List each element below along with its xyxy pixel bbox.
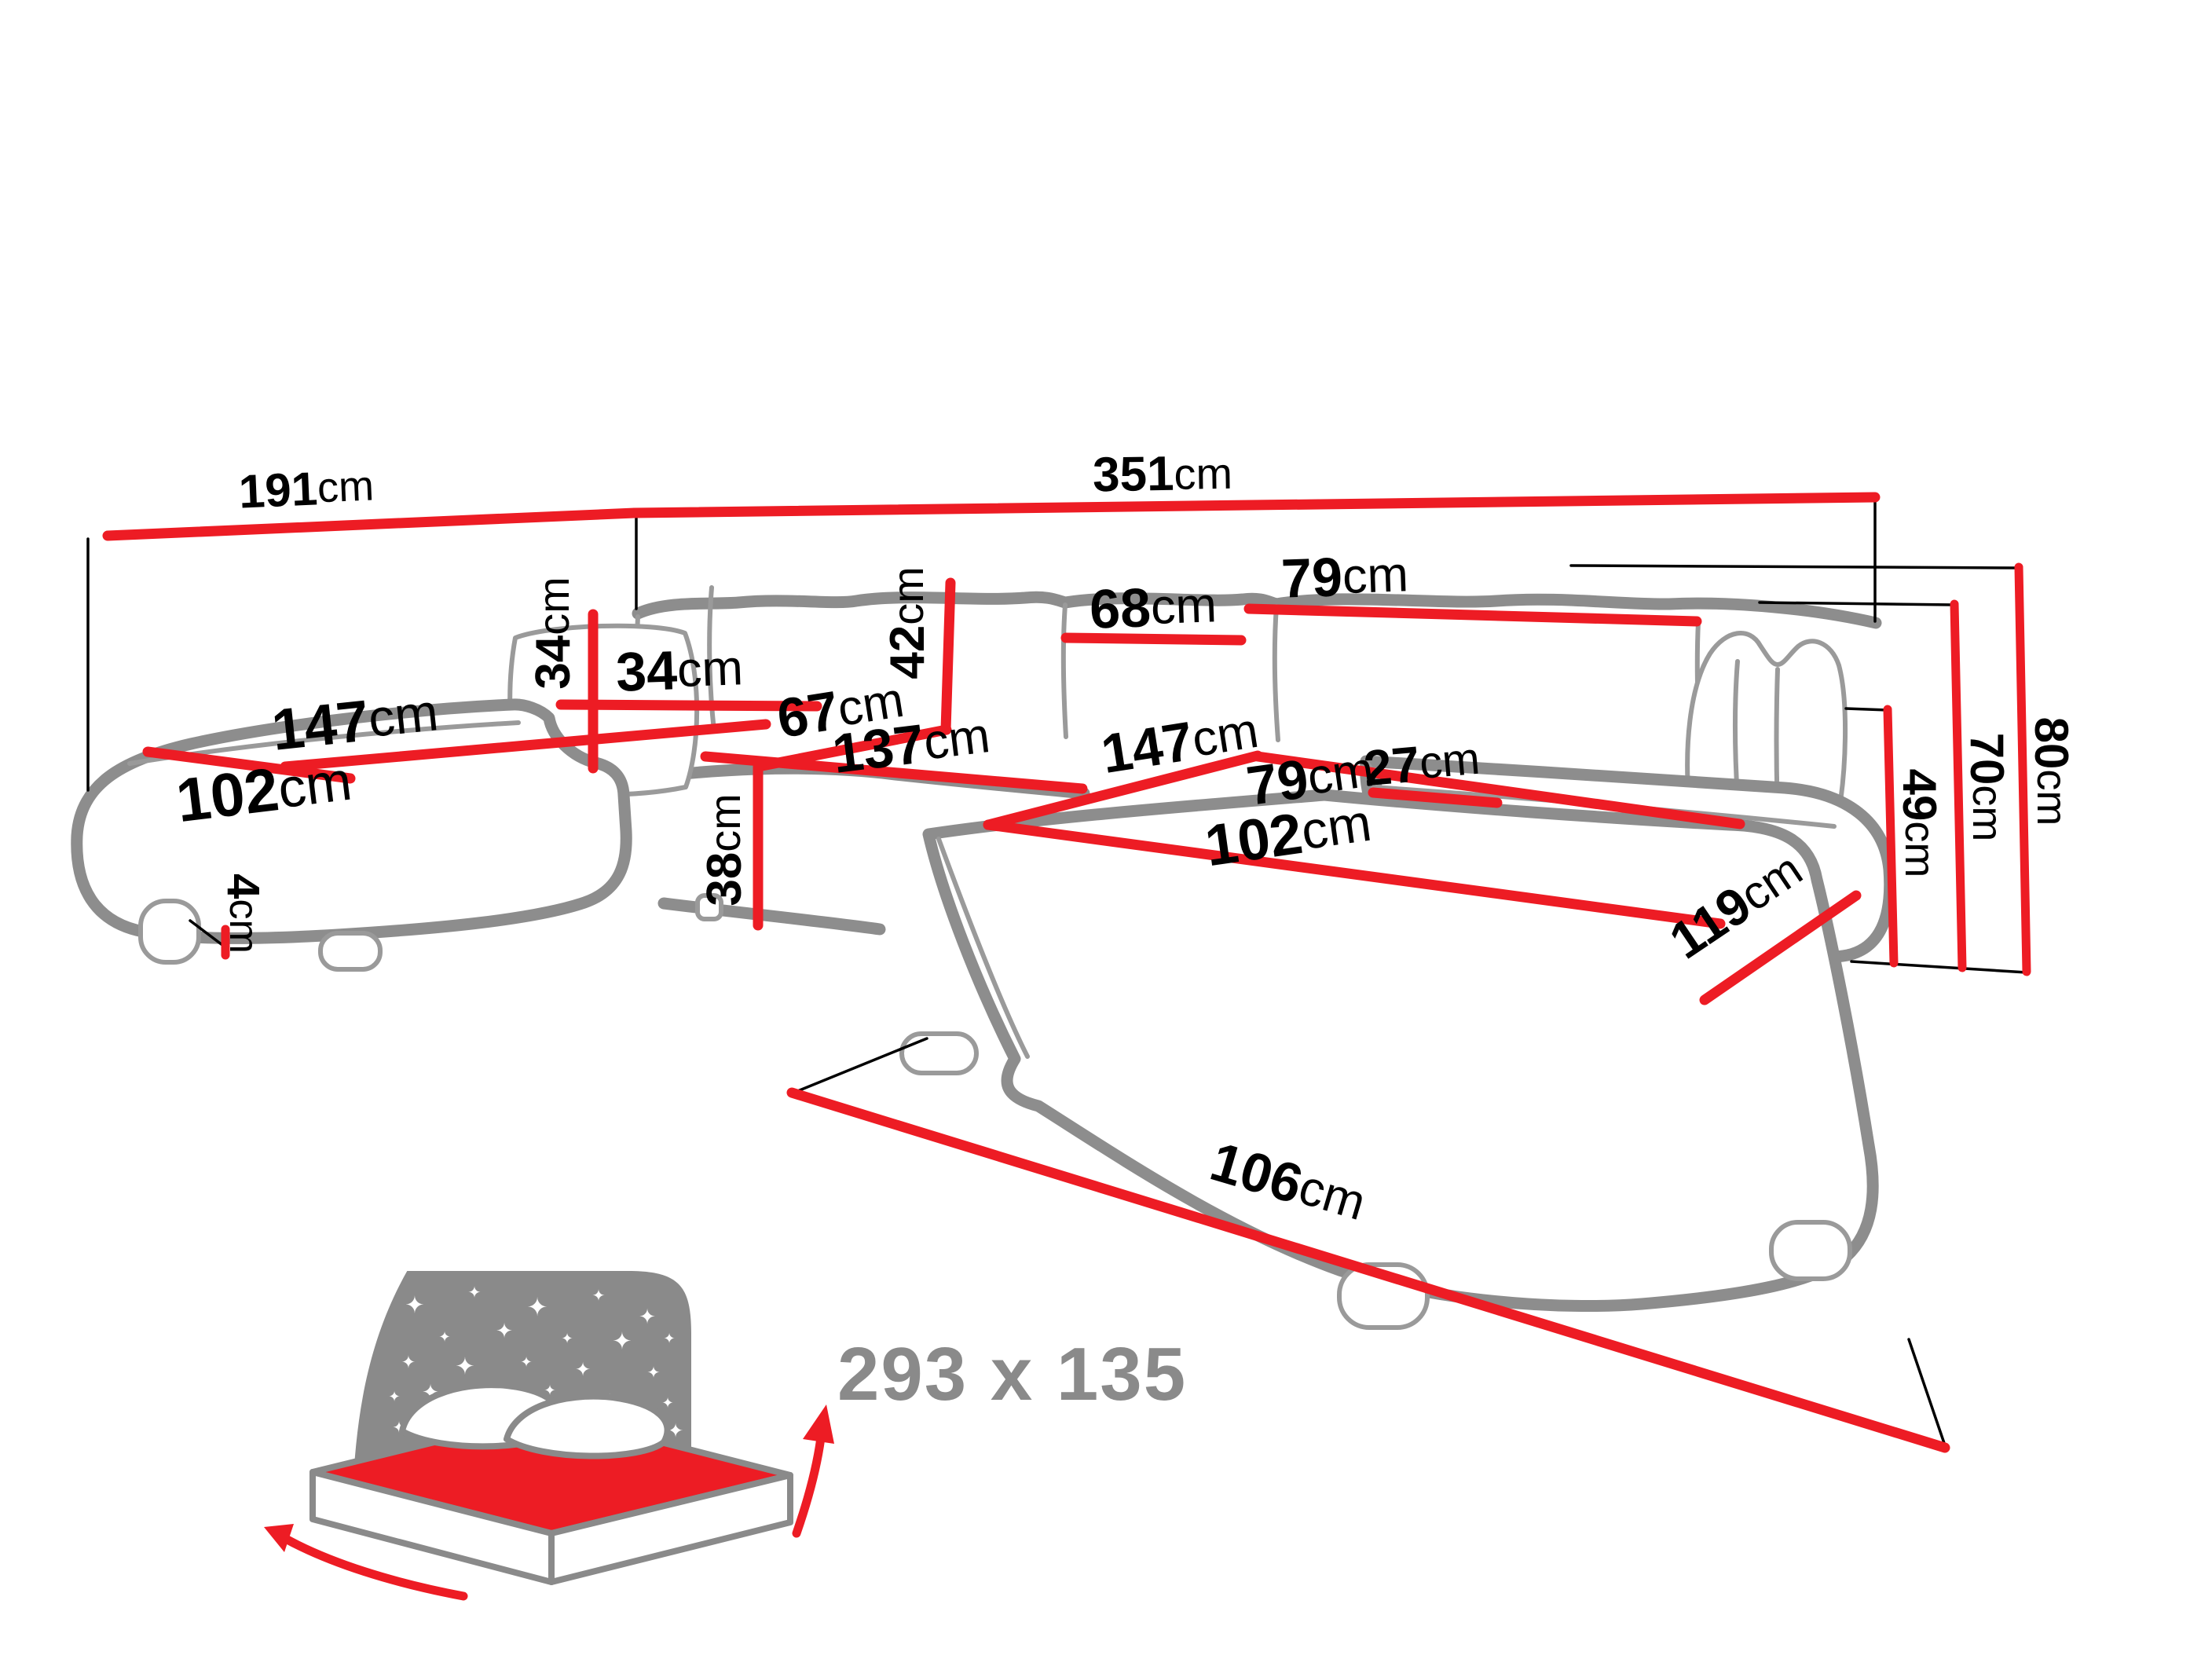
- dim-label-back-cushion-height: 42cm: [881, 566, 935, 679]
- svg-text:✦: ✦: [561, 1331, 573, 1346]
- svg-text:✦: ✦: [575, 1360, 591, 1381]
- back-cushion-separator-2: [1064, 605, 1066, 737]
- svg-text:✦: ✦: [455, 1354, 474, 1380]
- dim-label-backrest-height: 70cm: [1961, 733, 2014, 842]
- svg-text:✦: ✦: [592, 1287, 606, 1305]
- dim-label-back-width-left: 191cm: [238, 460, 375, 518]
- ext-floor-right: [1851, 961, 2027, 972]
- svg-text:✦: ✦: [647, 1364, 661, 1382]
- dim-line-backrest-height: [1954, 604, 1962, 968]
- svg-text:✦: ✦: [520, 1354, 532, 1370]
- dim-label-back-cushion-width-right: 79cm: [1280, 544, 1409, 610]
- back-cushion-separator-3: [1275, 606, 1278, 740]
- svg-text:✦: ✦: [663, 1331, 675, 1346]
- dim-label-seat-height: 38cm: [698, 793, 752, 906]
- dim-line-back-width-left: [108, 513, 635, 536]
- ext-floor-front-right: [1909, 1339, 1946, 1448]
- svg-text:✦: ✦: [661, 1395, 673, 1411]
- right-chaise: [928, 795, 1873, 1306]
- bed-size-label: 293 x 135: [837, 1332, 1187, 1416]
- bed-depth-arrowhead: [803, 1404, 834, 1444]
- sofa-dimension-diagram: 191cm 351cm 34cm 34cm 147cm 102cm 4cm 67…: [0, 0, 2212, 1659]
- svg-text:✦: ✦: [401, 1353, 416, 1372]
- dim-label-back-cushion-width-middle: 68cm: [1089, 574, 1218, 640]
- svg-text:✦: ✦: [496, 1319, 513, 1342]
- dim-line-back-width-total: [635, 497, 1875, 513]
- right-chaise-leg-right: [1771, 1222, 1850, 1279]
- dim-label-right-chaise-length: 147cm: [1097, 700, 1263, 785]
- dim-line-total-height: [2019, 567, 2027, 972]
- ext-total-height: [1571, 566, 2019, 568]
- dim-line-back-cushion-width-right: [1249, 609, 1697, 621]
- diagram-canvas: 191cm 351cm 34cm 34cm 147cm 102cm 4cm 67…: [0, 0, 2212, 1659]
- ext-armrest-height: [1846, 709, 1888, 710]
- dim-label-leg-height: 4cm: [218, 873, 269, 954]
- right-chaise-leg-left: [902, 1034, 976, 1073]
- dim-label-total-height: 80cm: [2026, 717, 2078, 826]
- left-chaise-leg-right: [320, 933, 380, 969]
- dim-label-pillow-width: 34cm: [615, 637, 744, 703]
- dim-line-back-cushion-height: [946, 583, 950, 730]
- dim-label-back-width-total: 351cm: [1093, 445, 1233, 501]
- sleeping-function-icon: ✦ ✦ ✦ ✦ ✦ ✦ ✦ ✦ ✦ ✦ ✦ ✦ ✦ ✦ ✦ ✦ ✦ ✦ ✦ ✦ …: [264, 1269, 1187, 1596]
- svg-text:✦: ✦: [527, 1293, 548, 1321]
- svg-text:✦: ✦: [405, 1293, 424, 1319]
- left-chaise-leg-front: [141, 901, 199, 962]
- svg-text:✦: ✦: [639, 1305, 656, 1328]
- dim-label-armrest-height: 49cm: [1894, 769, 1946, 878]
- svg-text:✦: ✦: [388, 1389, 400, 1404]
- svg-text:✦: ✦: [468, 1284, 482, 1302]
- svg-text:✦: ✦: [438, 1329, 450, 1345]
- svg-text:✦: ✦: [612, 1329, 632, 1355]
- dim-label-pillow-height: 34cm: [526, 577, 580, 689]
- bed-depth-arrow: [797, 1431, 822, 1533]
